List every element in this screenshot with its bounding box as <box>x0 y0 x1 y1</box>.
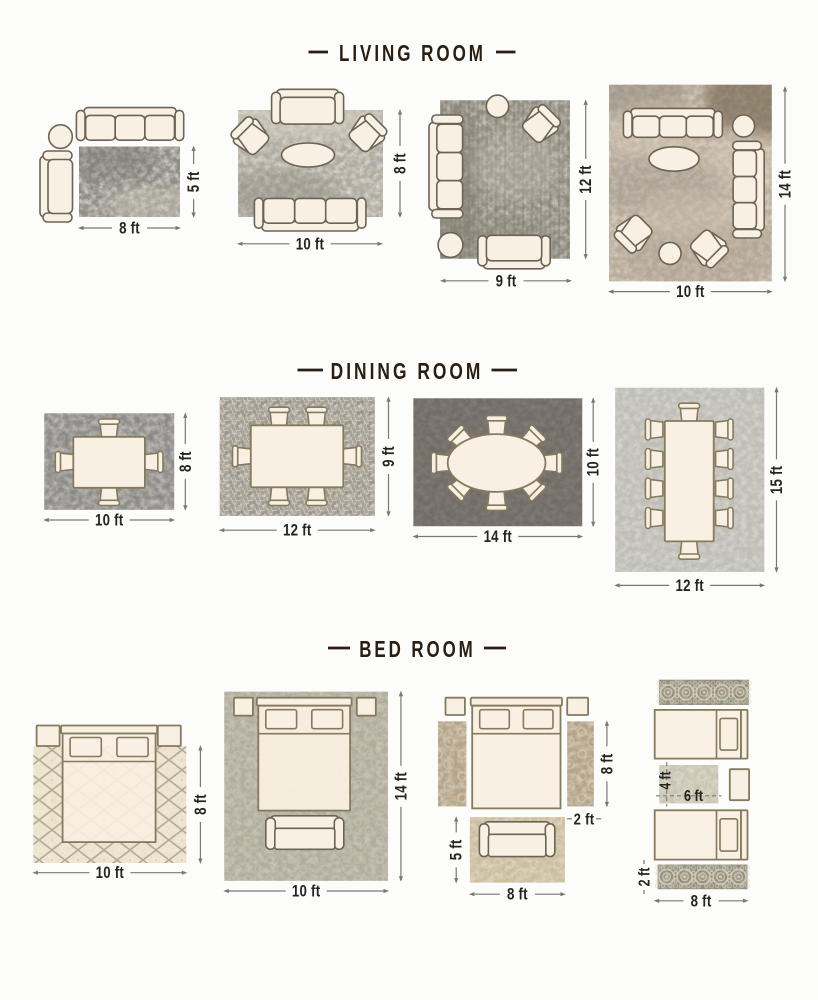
svg-text:5 ft: 5 ft <box>185 171 204 192</box>
svg-text:8 ft: 8 ft <box>507 885 528 904</box>
svg-text:2 ft: 2 ft <box>636 867 654 886</box>
svg-text:9 ft: 9 ft <box>496 272 517 291</box>
svg-text:2 ft: 2 ft <box>574 811 595 828</box>
svg-text:14 ft: 14 ft <box>776 170 795 198</box>
svg-text:10 ft: 10 ft <box>296 235 324 254</box>
svg-text:8 ft: 8 ft <box>391 153 410 174</box>
svg-text:5 ft: 5 ft <box>447 839 466 860</box>
svg-text:LIVING ROOM: LIVING ROOM <box>339 42 486 67</box>
svg-text:14 ft: 14 ft <box>484 528 512 547</box>
svg-text:10 ft: 10 ft <box>584 448 603 476</box>
svg-text:14 ft: 14 ft <box>392 772 411 800</box>
svg-text:12 ft: 12 ft <box>676 576 704 595</box>
svg-text:10 ft: 10 ft <box>676 283 704 302</box>
svg-text:10 ft: 10 ft <box>292 882 320 901</box>
svg-text:8 ft: 8 ft <box>691 892 712 911</box>
svg-text:12 ft: 12 ft <box>577 165 596 193</box>
svg-text:BED ROOM: BED ROOM <box>359 638 475 663</box>
svg-text:4 ft: 4 ft <box>656 771 674 789</box>
svg-text:15 ft: 15 ft <box>768 466 787 494</box>
svg-text:8 ft: 8 ft <box>191 794 210 815</box>
svg-text:9 ft: 9 ft <box>380 446 399 467</box>
svg-text:8 ft: 8 ft <box>598 753 617 774</box>
svg-text:6 ft: 6 ft <box>684 788 703 805</box>
svg-text:DINING ROOM: DINING ROOM <box>331 360 484 385</box>
svg-text:12 ft: 12 ft <box>283 521 311 540</box>
svg-text:10 ft: 10 ft <box>96 864 124 883</box>
svg-text:10 ft: 10 ft <box>95 511 123 530</box>
svg-text:8 ft: 8 ft <box>119 219 140 238</box>
svg-text:8 ft: 8 ft <box>176 451 195 472</box>
